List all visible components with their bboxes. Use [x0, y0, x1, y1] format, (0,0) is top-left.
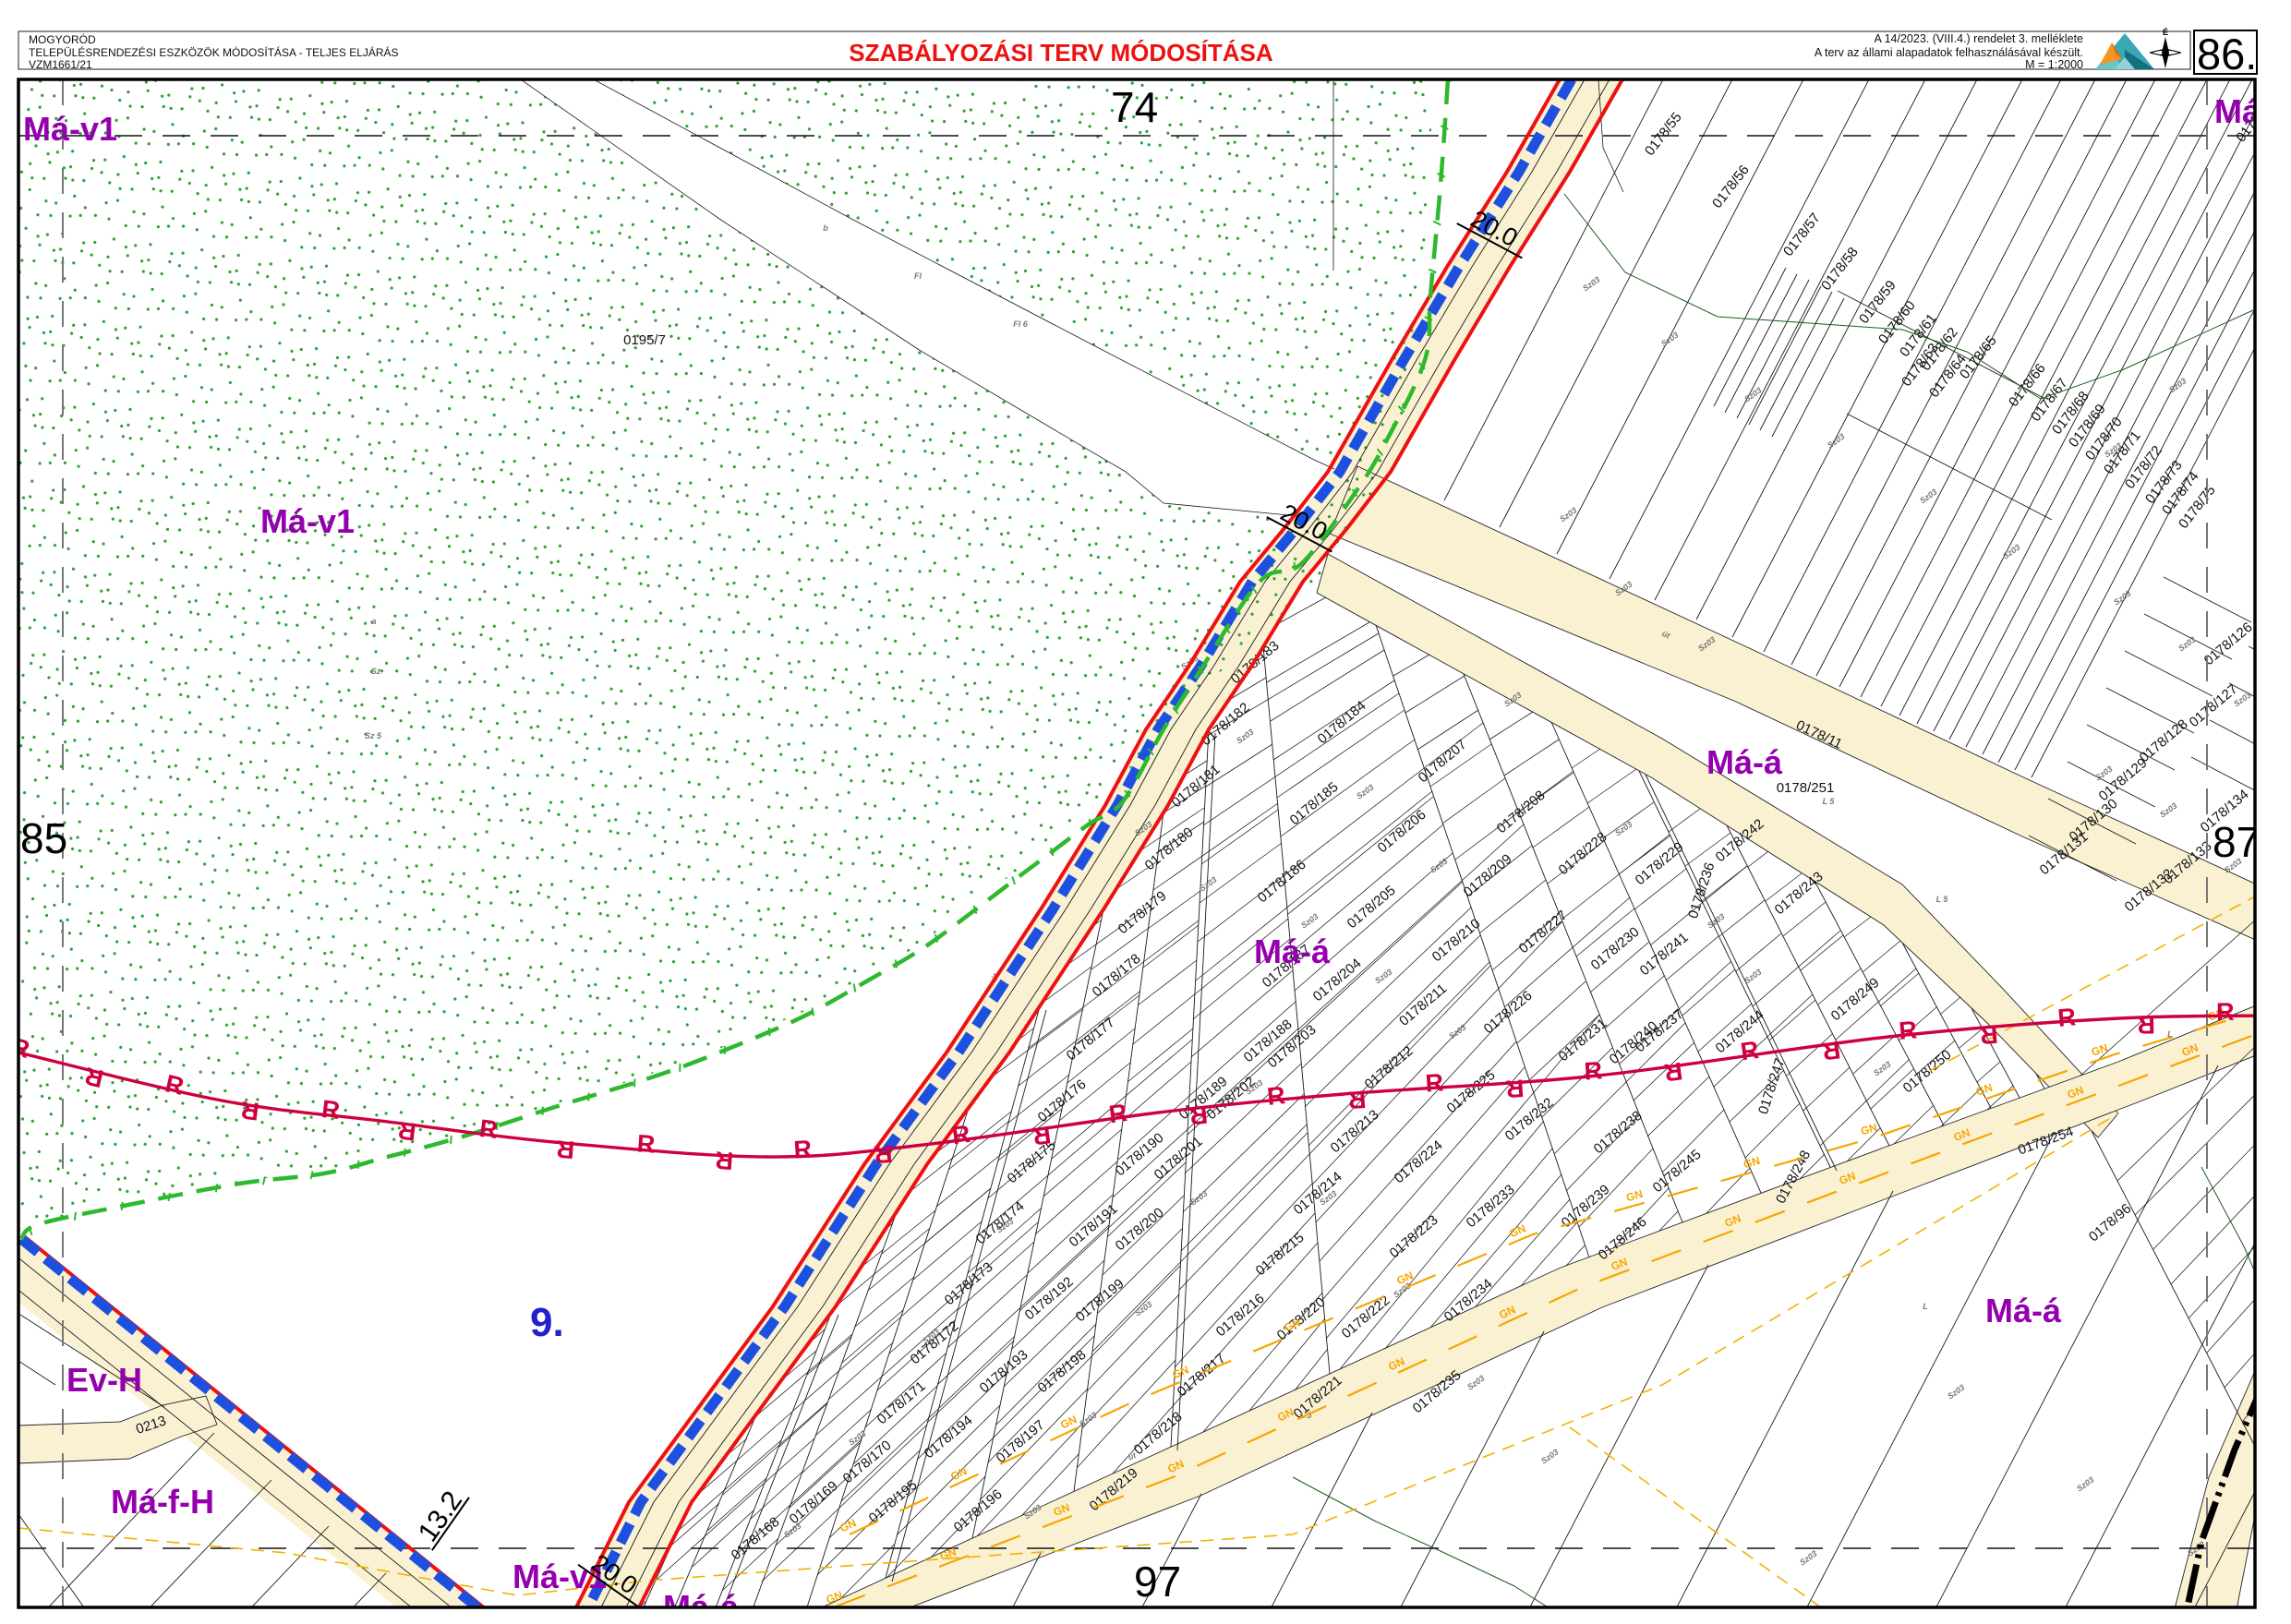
svg-text:87: 87: [2213, 818, 2260, 866]
svg-text:R: R: [2137, 1011, 2155, 1039]
svg-text:R: R: [1505, 1074, 1525, 1102]
svg-text:Má-f-H: Má-f-H: [111, 1483, 214, 1521]
svg-text:Sz 5: Sz 5: [365, 731, 382, 740]
svg-text:R: R: [1663, 1057, 1684, 1087]
svg-text:R: R: [1979, 1020, 1999, 1050]
svg-text:R: R: [1821, 1036, 1842, 1065]
svg-text:L 5: L 5: [1936, 895, 1949, 904]
svg-text:R: R: [950, 1120, 971, 1149]
svg-text:86.: 86.: [2197, 30, 2257, 78]
svg-text:R: R: [478, 1114, 500, 1144]
svg-text:Má-v1: Má-v1: [23, 110, 117, 148]
svg-text:A 14/2023. (VIII.4.) rendelet: A 14/2023. (VIII.4.) rendelet 3. mellékl…: [1874, 32, 2083, 45]
svg-text:R: R: [1584, 1056, 1604, 1085]
svg-text:SZABÁLYOZÁSI TERV MÓDOSÍTÁSA: SZABÁLYOZÁSI TERV MÓDOSÍTÁSA: [849, 39, 1273, 66]
svg-text:Má-v1: Má-v1: [260, 502, 355, 540]
svg-text:Má-á: Má-á: [1706, 743, 1783, 781]
svg-text:R: R: [715, 1146, 735, 1174]
svg-text:Fl: Fl: [914, 271, 922, 281]
svg-text:M = 1:2000: M = 1:2000: [2025, 58, 2083, 71]
svg-text:R: R: [1347, 1085, 1368, 1113]
svg-text:R: R: [2056, 1003, 2077, 1032]
svg-text:R: R: [1188, 1101, 1210, 1130]
svg-text:É: É: [2163, 28, 2168, 37]
svg-text:R: R: [1739, 1036, 1760, 1065]
svg-text:Sz: Sz: [371, 667, 381, 676]
svg-text:L 5: L 5: [1823, 797, 1836, 806]
svg-text:A terv az állami alapadatok fe: A terv az állami alapadatok felhasználás…: [1815, 46, 2083, 59]
svg-text:R: R: [1107, 1099, 1128, 1128]
svg-text:0195/7: 0195/7: [623, 332, 666, 348]
svg-text:R: R: [874, 1139, 894, 1168]
svg-text:a: a: [371, 617, 376, 626]
svg-text:R: R: [1898, 1016, 1918, 1045]
svg-text:TELEPÜLÉSRENDEZÉSI ESZKÖZÖK MÓ: TELEPÜLÉSRENDEZÉSI ESZKÖZÖK MÓDOSÍTÁSA -…: [29, 45, 399, 59]
svg-text:Má-á: Má-á: [1254, 932, 1331, 970]
svg-text:R: R: [793, 1135, 814, 1163]
svg-text:85: 85: [20, 814, 67, 862]
svg-text:74: 74: [1111, 83, 1158, 131]
svg-text:R: R: [1031, 1121, 1053, 1150]
svg-text:R: R: [396, 1116, 417, 1146]
svg-text:R: R: [636, 1129, 657, 1158]
svg-text:Ev-H: Ev-H: [66, 1361, 142, 1399]
svg-text:0178/251: 0178/251: [1777, 780, 1835, 796]
svg-text:R: R: [1266, 1081, 1287, 1111]
svg-text:97: 97: [1134, 1558, 1181, 1606]
svg-text:Má-á: Má-á: [1985, 1292, 2062, 1329]
svg-text:R: R: [1425, 1068, 1445, 1097]
svg-text:R: R: [2216, 998, 2235, 1026]
svg-text:R: R: [239, 1096, 260, 1125]
svg-text:Fl 6: Fl 6: [1013, 319, 1028, 329]
svg-text:MOGYORÓD: MOGYORÓD: [29, 32, 96, 46]
svg-text:b: b: [823, 223, 828, 233]
svg-text:R: R: [556, 1135, 576, 1163]
svg-text:R: R: [320, 1095, 342, 1125]
svg-text:L: L: [1923, 1302, 1928, 1311]
svg-text:9.: 9.: [530, 1300, 564, 1345]
svg-text:VZM1661/21: VZM1661/21: [29, 58, 92, 71]
